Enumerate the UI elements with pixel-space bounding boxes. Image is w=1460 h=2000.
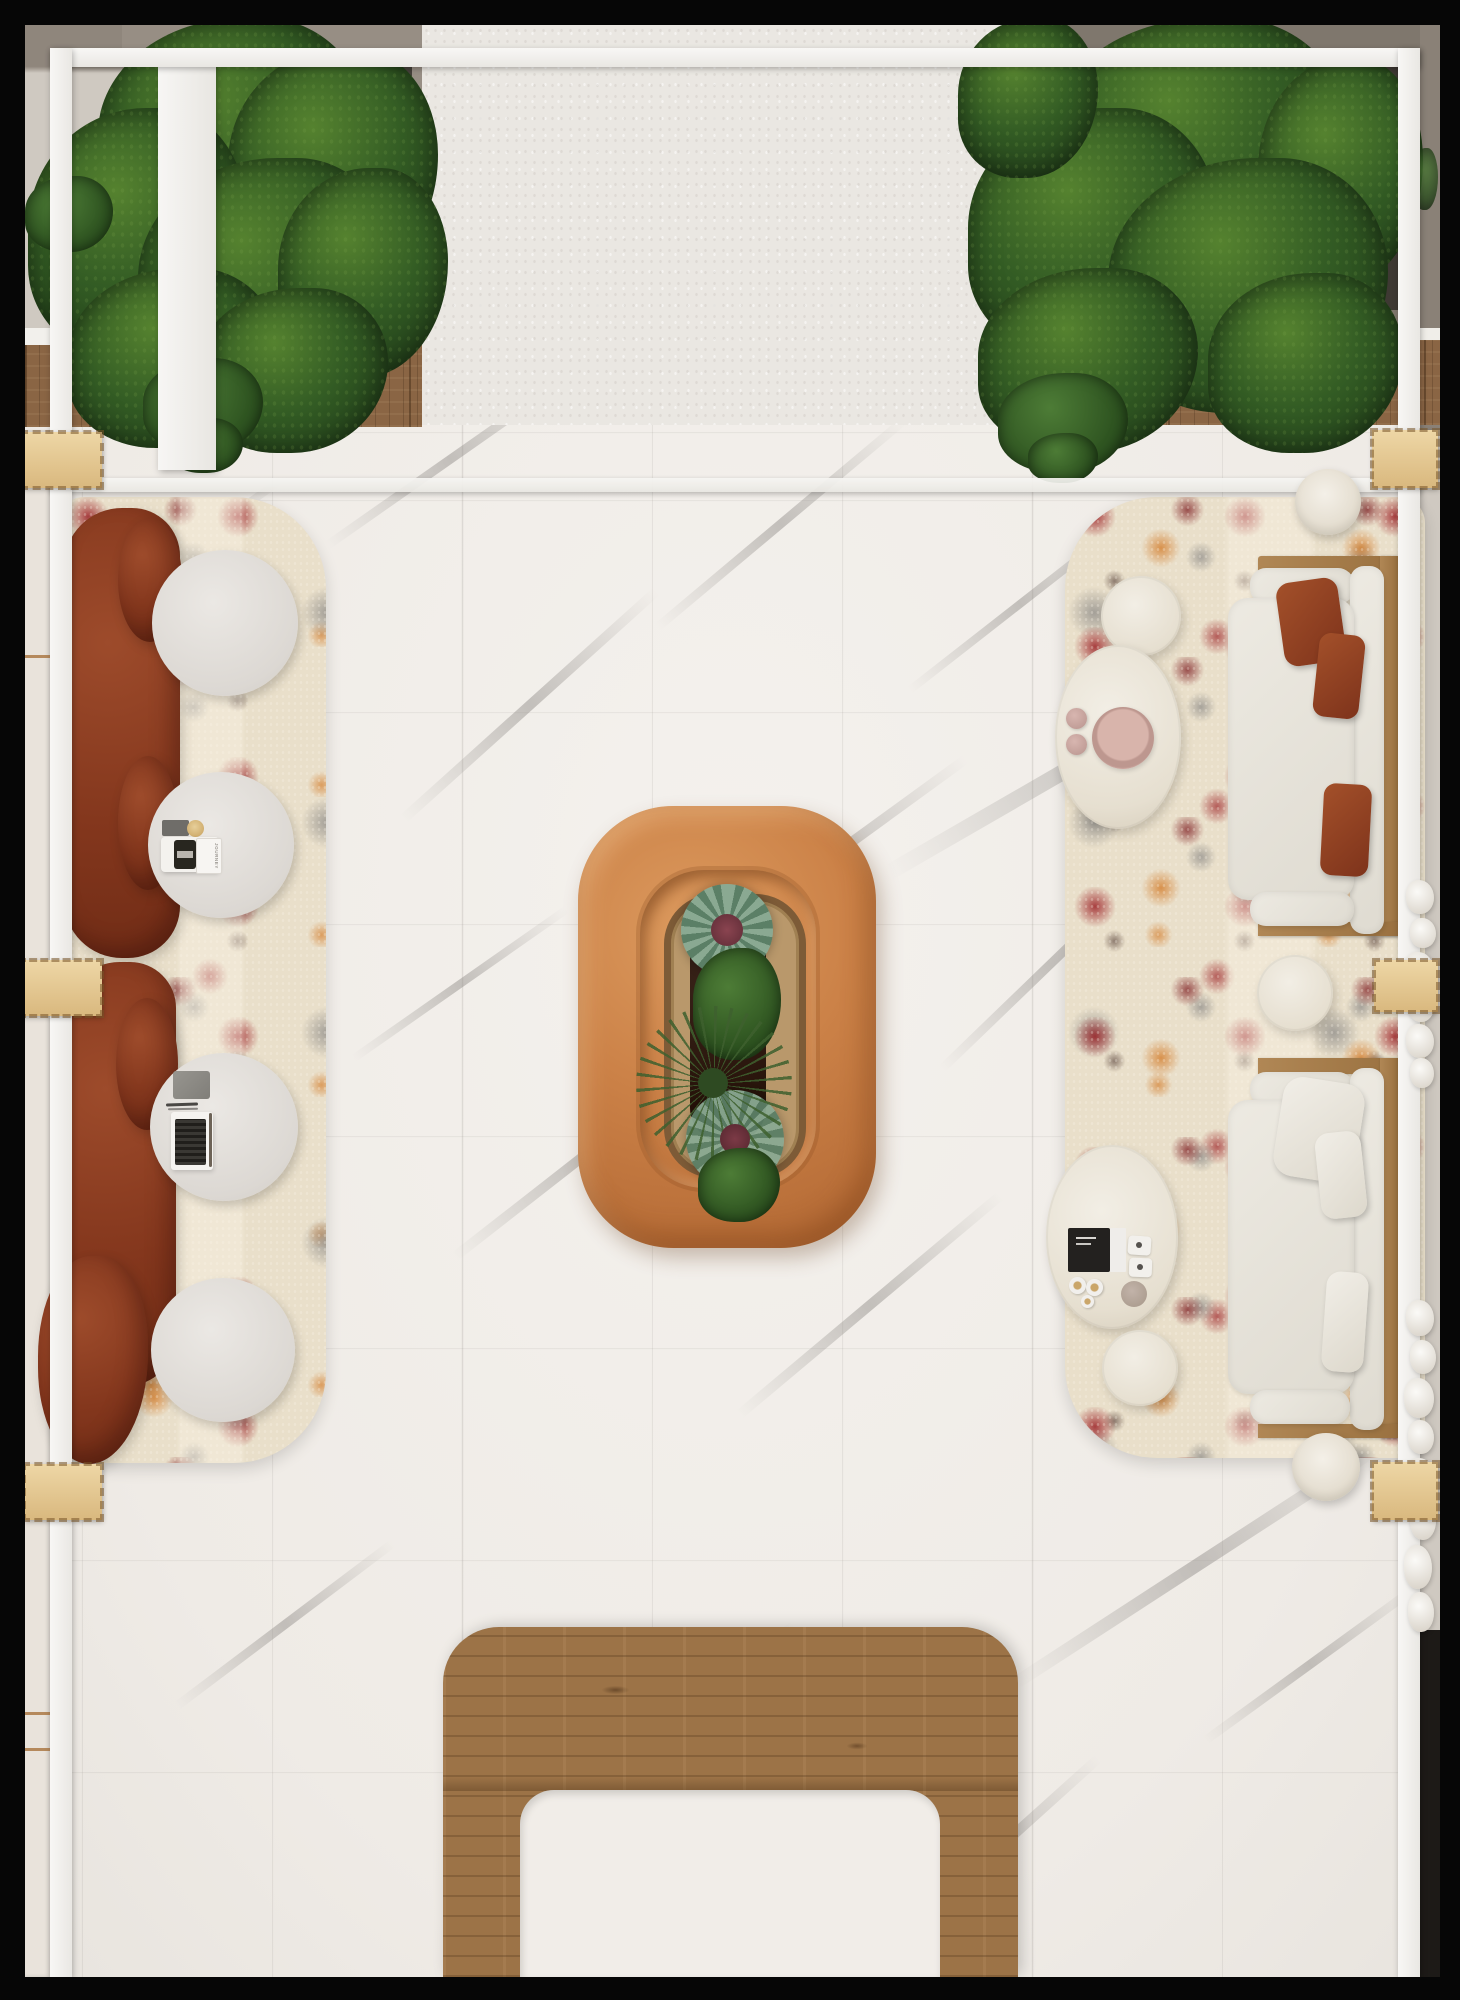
cabinet-shelf-line [25,1712,52,1715]
white-flower [1410,1058,1434,1088]
white-flower [1406,1300,1434,1336]
center-ottoman [578,806,876,1248]
cabinet-shelf-line [25,1748,52,1751]
white-cup [1069,1277,1086,1294]
succulent-core [711,914,743,946]
rust-pillow [1312,632,1367,720]
timber-post [20,960,102,1016]
timber-post [1374,960,1438,1012]
taupe-bowl [1121,1281,1147,1307]
white-flower [1410,1340,1436,1374]
white-flower [1410,918,1436,948]
round-table-1 [152,550,298,696]
white-pillow [1321,1271,1370,1374]
round-table-4 [151,1278,295,1422]
laptop-closed [173,1071,210,1099]
timber-post [22,432,102,488]
white-flower [1408,1420,1434,1454]
phone [162,820,189,836]
side-table-2 [1102,1330,1178,1406]
timber-post [1372,430,1438,488]
wooden-tray [1092,707,1154,769]
coaster-dot [1137,1264,1143,1270]
cream-sofa-upper-back [1350,566,1384,934]
wood-console-opening [520,1790,940,1977]
tree-foliage [1208,273,1403,453]
black-frame-top [0,0,1460,25]
journey-book-label: JOURNEY [198,842,218,870]
cabinet-shelf-line [25,655,52,658]
keyboard [175,1119,206,1165]
espresso-cup [187,820,204,837]
black-book [1068,1228,1110,1272]
white-flower [1408,1592,1434,1632]
indoor-tree-right [938,18,1423,458]
pink-cup [1066,708,1087,729]
white-cup [1086,1279,1103,1296]
white-cup [1081,1295,1094,1308]
nesting-side-table [1101,576,1181,656]
wood-console [443,1627,1018,1977]
pergola-beam-top [50,48,1420,67]
book-page [1110,1228,1126,1272]
white-pillow [1314,1130,1369,1220]
pergola-beam-middle [50,478,1420,492]
tree-sprig [1028,433,1098,483]
timber-post [1372,1462,1438,1520]
black-frame-bottom [0,1977,1460,2000]
cream-sofa-upper-armrest [1250,892,1354,926]
white-flower [1406,880,1434,914]
book-text-line [1076,1243,1091,1245]
coaster-dot [1136,1242,1142,1248]
grass-core [698,1068,728,1098]
black-frame-right [1440,0,1460,2000]
timber-post [24,1464,102,1520]
cream-sofa-lower-armrest [1250,1390,1350,1424]
white-flower [1406,1024,1434,1058]
white-flower [1404,1545,1432,1589]
moka-pot-band [177,851,193,858]
dark-strip-right [1420,1630,1440,1977]
side-table-1 [1257,955,1333,1031]
pen [209,1113,212,1167]
black-frame-left [0,0,25,2000]
left-cabinet-ledge [25,430,52,1977]
pink-cup [1066,734,1087,755]
lobby-room-render: JOURNEY [0,0,1460,2000]
pouf-top [1295,469,1361,535]
white-column-left [158,62,216,470]
rust-pillow [1320,783,1373,877]
leafy-plant [698,1148,780,1222]
white-flower [1404,1378,1434,1418]
book-text-line [1076,1237,1096,1239]
wood-console-edge-shadow [443,1777,1018,1791]
pouf-bottom [1292,1433,1360,1501]
